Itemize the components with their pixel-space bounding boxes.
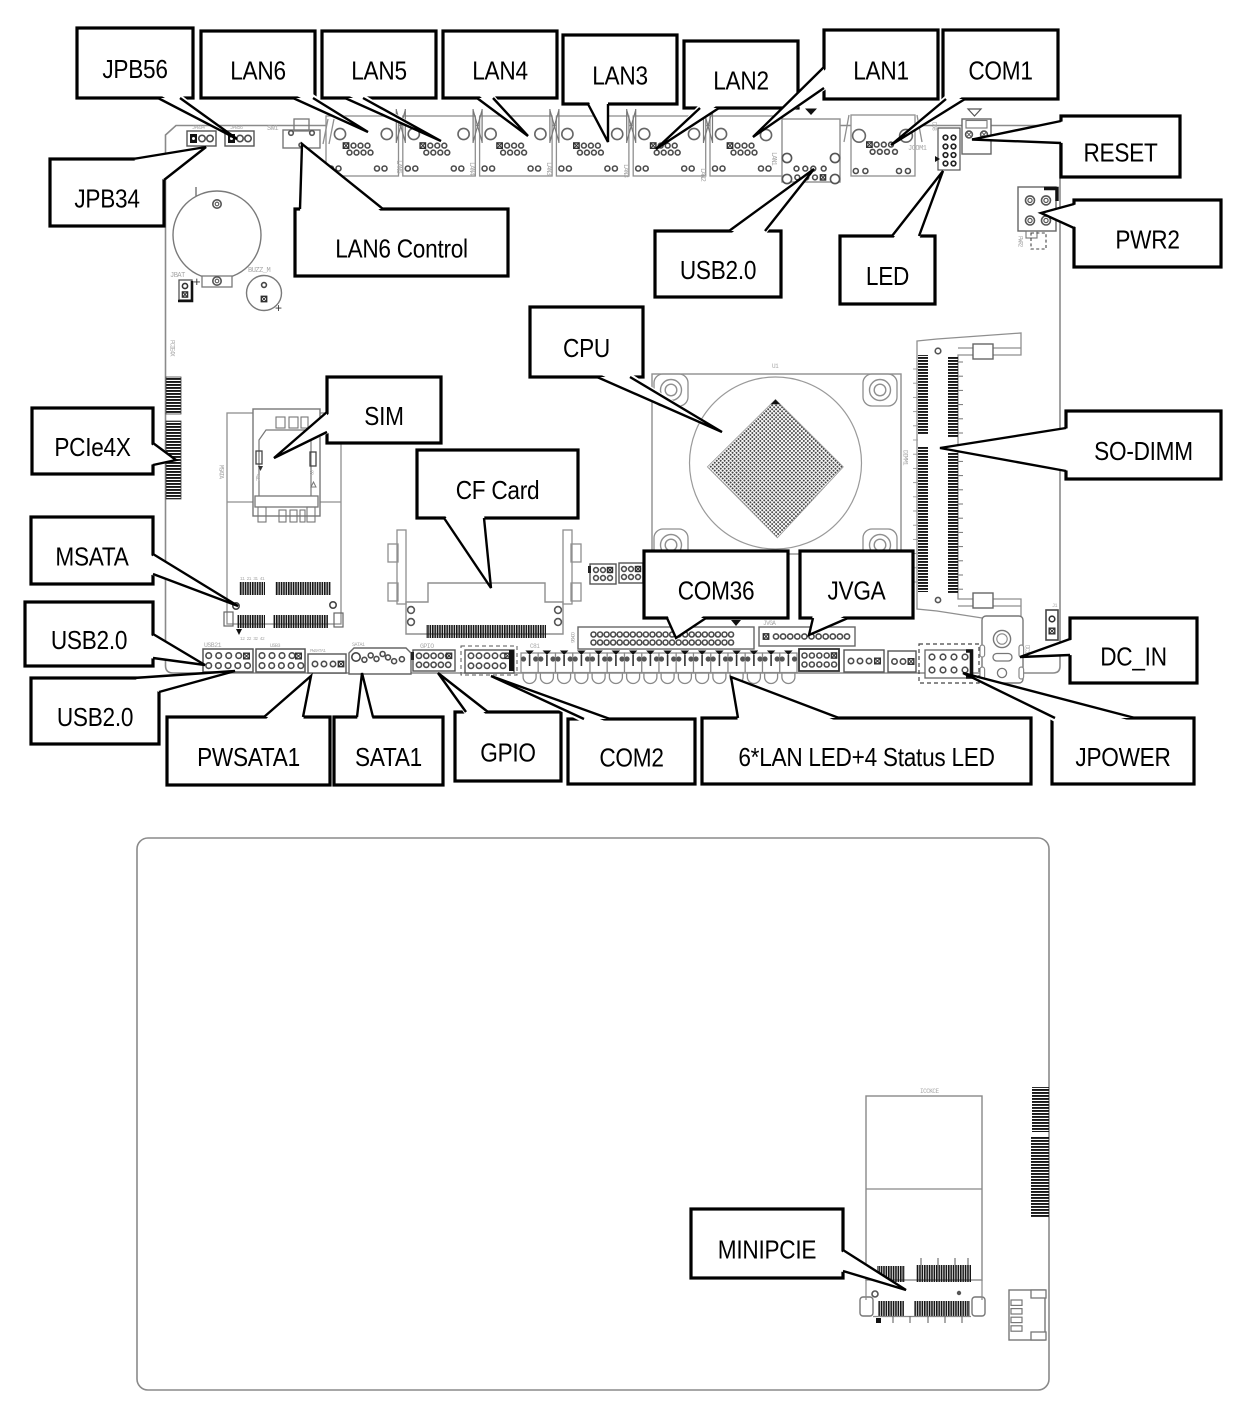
svg-text:LAN6 Control: LAN6 Control xyxy=(335,235,468,264)
svg-text:+: + xyxy=(275,301,282,315)
svg-text:JPB34: JPB34 xyxy=(192,125,205,131)
svg-text:JVGA: JVGA xyxy=(763,620,776,627)
svg-text:SATA1: SATA1 xyxy=(355,744,422,773)
svg-text:PWR2: PWR2 xyxy=(1017,236,1024,248)
svg-text:MSATA: MSATA xyxy=(55,543,129,572)
svg-text:41C: 41C xyxy=(254,474,260,481)
svg-text:BUZZ_M: BUZZ_M xyxy=(248,267,271,275)
svg-text:SATA1: SATA1 xyxy=(352,642,365,648)
svg-text:JPOWER: JPOWER xyxy=(1075,744,1170,773)
svg-text:LAN3: LAN3 xyxy=(592,62,648,91)
svg-text:JPB34: JPB34 xyxy=(74,185,139,214)
svg-text:CPU: CPU xyxy=(563,335,610,364)
svg-text:COM2: COM2 xyxy=(599,744,663,773)
svg-text:PWSATA1: PWSATA1 xyxy=(197,744,300,773)
svg-text:LAN1: LAN1 xyxy=(853,57,909,86)
svg-text:SW1: SW1 xyxy=(267,125,278,133)
svg-text:C81: C81 xyxy=(530,643,540,650)
svg-text:LAN6: LAN6 xyxy=(230,57,286,86)
svg-text:DC_IN: DC_IN xyxy=(1100,643,1167,672)
svg-text:6*LAN LED+4 Status LED: 6*LAN LED+4 Status LED xyxy=(738,744,994,773)
svg-text:SIM: SIM xyxy=(364,403,403,432)
svg-text:COM36: COM36 xyxy=(678,577,755,606)
svg-text:11 21 31 41: 11 21 31 41 xyxy=(240,576,265,582)
svg-text:USB2.0: USB2.0 xyxy=(57,704,133,733)
svg-text:PWR2: PWR2 xyxy=(1115,226,1179,255)
svg-text:LAN5: LAN5 xyxy=(351,57,407,86)
svg-text:MINIPCIE: MINIPCIE xyxy=(718,1236,816,1265)
svg-text:COM36: COM36 xyxy=(569,632,575,643)
svg-text:COM1: COM1 xyxy=(968,57,1032,86)
svg-text:PCIE4X: PCIE4X xyxy=(169,340,176,357)
svg-text:JBAT: JBAT xyxy=(170,272,185,280)
svg-text:USB21: USB21 xyxy=(204,642,222,649)
svg-text:U1: U1 xyxy=(772,363,779,370)
svg-text:LAN4: LAN4 xyxy=(467,162,475,176)
svg-text:LAN1: LAN1 xyxy=(769,152,777,166)
svg-text:JPB56: JPB56 xyxy=(102,56,167,85)
svg-text:PWSATA1: PWSATA1 xyxy=(310,648,326,654)
svg-text:GPIO: GPIO xyxy=(420,643,434,650)
svg-text:JCOM1: JCOM1 xyxy=(908,145,927,153)
svg-text:J1: J1 xyxy=(1052,603,1058,609)
svg-text:12 22 32 42: 12 22 32 42 xyxy=(240,636,265,642)
svg-text:LAN3: LAN3 xyxy=(621,164,629,178)
svg-text:JVGA: JVGA xyxy=(827,577,886,606)
svg-text:LAN3: LAN3 xyxy=(544,162,552,176)
svg-text:LAN4: LAN4 xyxy=(472,57,528,86)
svg-text:GPIO: GPIO xyxy=(480,739,536,768)
svg-text:LAN5: LAN5 xyxy=(394,160,402,174)
svg-text:ICCKCE: ICCKCE xyxy=(920,1088,940,1095)
svg-text:+: + xyxy=(193,274,201,289)
svg-text:CF Card: CF Card xyxy=(456,477,540,506)
svg-text:USB3: USB3 xyxy=(270,643,281,649)
svg-text:LAN2: LAN2 xyxy=(713,67,769,96)
svg-text:RESET: RESET xyxy=(1083,139,1157,168)
svg-text:DIMM1: DIMM1 xyxy=(902,450,909,466)
svg-text:LED: LED xyxy=(866,263,909,292)
svg-text:SO-DIMM: SO-DIMM xyxy=(1094,438,1193,467)
svg-text:USB2.0: USB2.0 xyxy=(51,627,127,656)
svg-text:LAN2: LAN2 xyxy=(698,168,706,182)
svg-text:MSATA: MSATA xyxy=(218,465,225,479)
svg-text:PCIe4X: PCIe4X xyxy=(54,434,130,463)
svg-text:USB2.0: USB2.0 xyxy=(680,257,756,286)
svg-text:JPB56: JPB56 xyxy=(230,125,243,131)
